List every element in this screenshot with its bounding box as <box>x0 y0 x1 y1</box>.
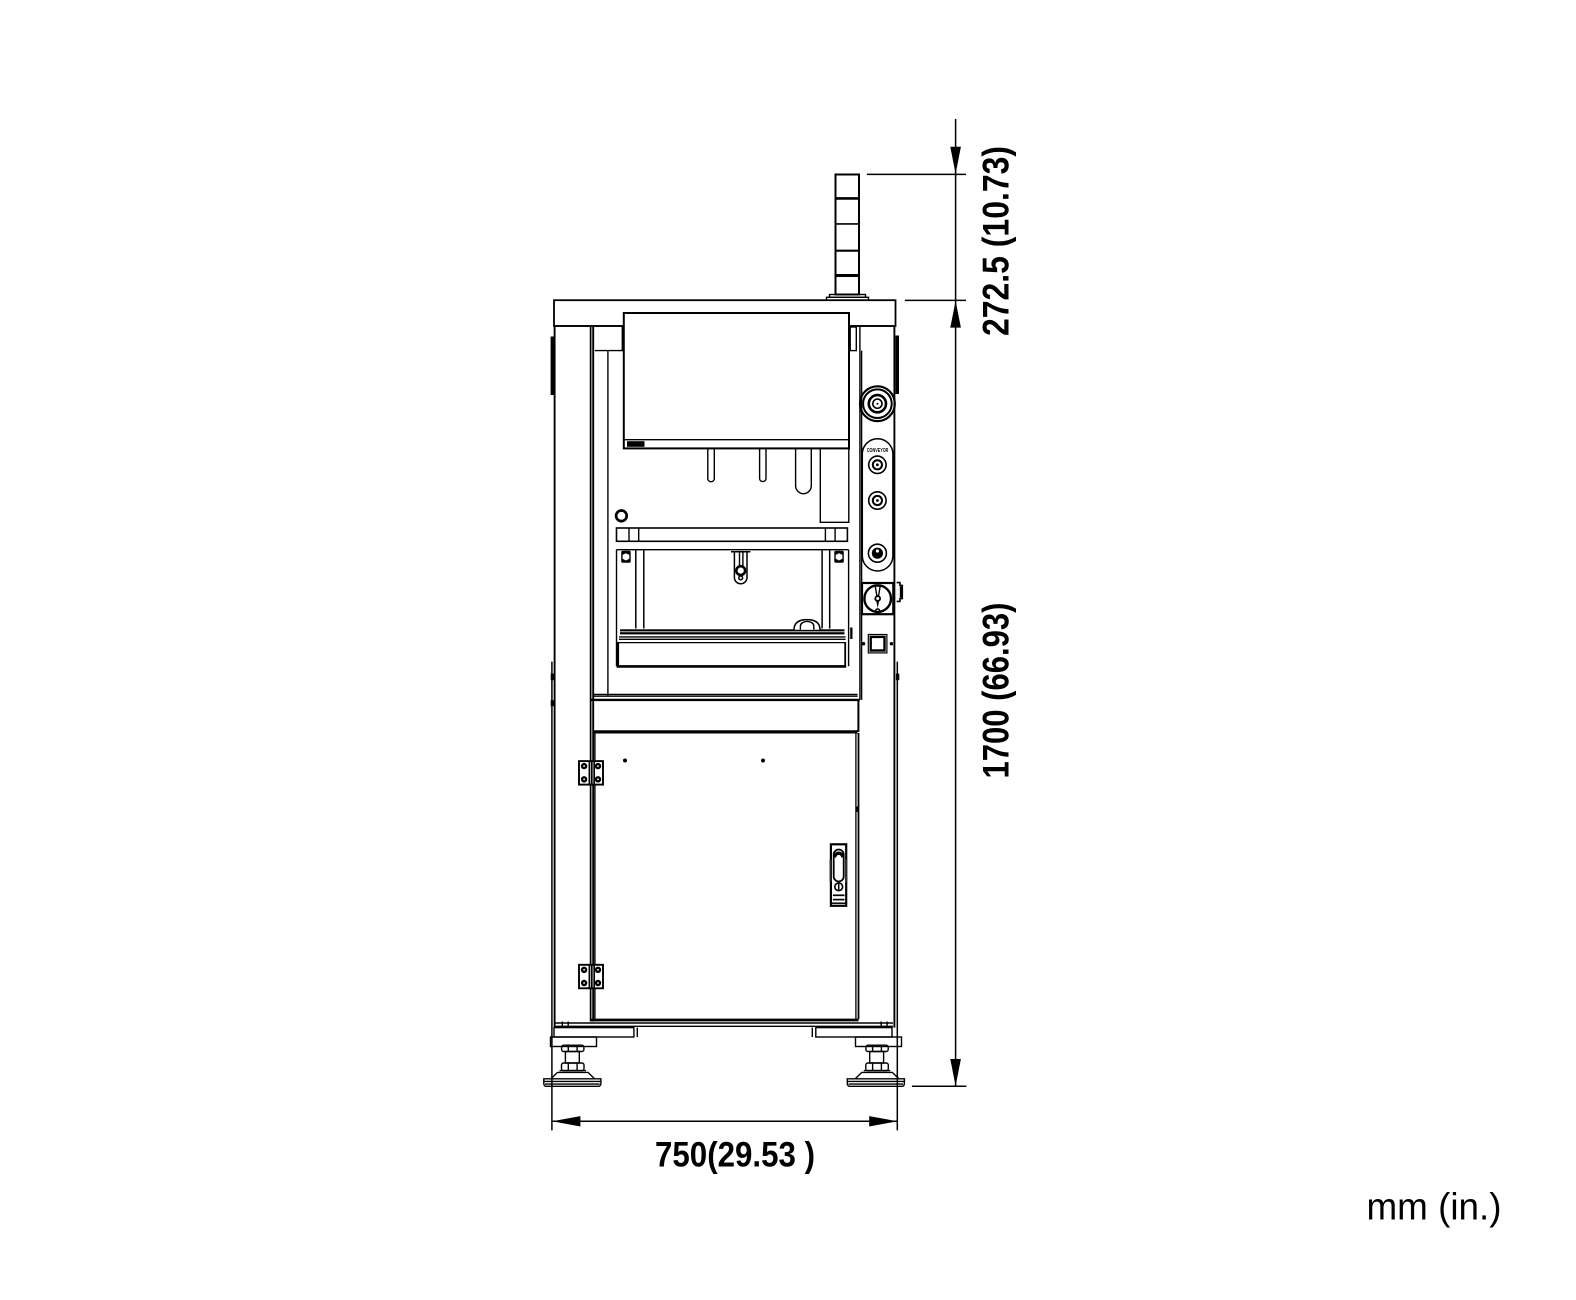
svg-text:1700 (66.93): 1700 (66.93) <box>976 603 1017 779</box>
svg-text:CONVEYOR: CONVEYOR <box>867 448 889 454</box>
svg-text:mm (in.): mm (in.) <box>1367 1187 1502 1229</box>
svg-text:272.5 (10.73): 272.5 (10.73) <box>976 146 1017 336</box>
svg-text:750(29.53 ): 750(29.53 ) <box>655 1136 815 1175</box>
